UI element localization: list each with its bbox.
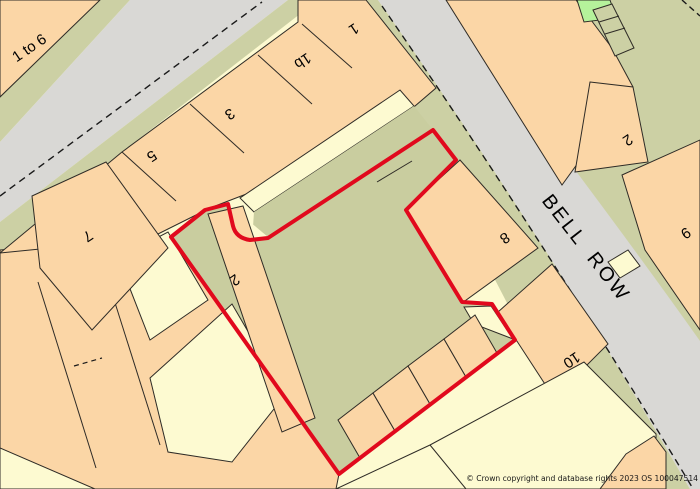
copyright-notice: © Crown copyright and database rights 20…: [466, 474, 698, 483]
map-extract: 1 to 6 5 3 1b 1 7 2 8 10 2 9 BELL ROW © …: [0, 0, 700, 489]
map-canvas: 1 to 6 5 3 1b 1 7 2 8 10 2 9 BELL ROW © …: [0, 0, 700, 489]
